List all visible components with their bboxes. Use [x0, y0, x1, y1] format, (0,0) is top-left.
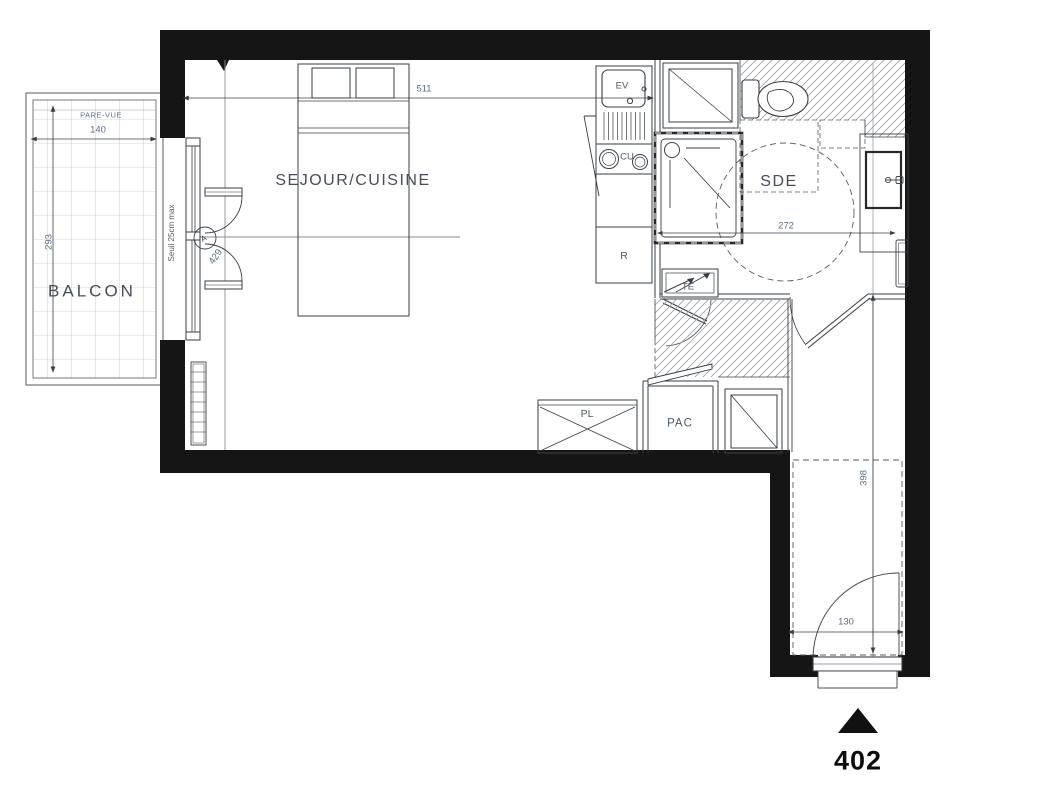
- balcony-depth-dim: 293: [44, 234, 54, 250]
- exterior-walls: [160, 30, 930, 677]
- vanity: [860, 134, 908, 252]
- heat-pump-label: PAC: [667, 418, 693, 430]
- unit-number: 402: [834, 748, 882, 775]
- sde-door: [790, 294, 870, 348]
- electrical-panel-label: TE: [682, 282, 694, 292]
- hall-dimension-lines: [793, 300, 903, 653]
- balcony-window-bay: [186, 138, 200, 340]
- pillow: [356, 68, 394, 98]
- bathroom-label: SDE: [760, 174, 797, 190]
- hall-length-dim: 398: [859, 470, 869, 486]
- balcony-screen-label: PARE-VUE: [80, 111, 122, 119]
- sink-label: EV: [616, 81, 629, 91]
- counter-callout: [584, 116, 599, 196]
- counter-unit: [596, 174, 652, 227]
- wall-tick-marker: [217, 60, 229, 71]
- radiator: [191, 362, 206, 445]
- entry-door: [813, 573, 902, 688]
- balcony-width-dim: 140: [90, 125, 106, 135]
- living-width-dim: 511: [416, 84, 431, 94]
- sink-drainer: [604, 112, 645, 140]
- pillow: [312, 68, 350, 98]
- fridge-label: R: [620, 251, 628, 262]
- toilet: [742, 80, 808, 118]
- wc-clearance-dashed: [820, 120, 865, 148]
- triangle-marker-icon: [838, 708, 878, 733]
- bathroom-width-dim: 272: [778, 221, 794, 231]
- balcony-label: BALCON: [48, 283, 136, 300]
- tall-cabinet: [663, 63, 738, 128]
- living-room-label: SEJOUR/CUISINE: [275, 173, 430, 189]
- floor-plan: PARE-VUE 140 293 BALCON Seuil 25cm max A…: [0, 0, 1039, 800]
- floor-plan-drawing: [0, 0, 1039, 800]
- hob-label: CU: [620, 152, 634, 162]
- threshold-note: Seuil 25cm max: [168, 205, 176, 262]
- kitchen-counter: [584, 66, 652, 283]
- bed: [298, 64, 409, 316]
- storage-closet-label: PL: [581, 409, 594, 420]
- entry-door-dim: 130: [838, 617, 854, 627]
- entry-closet: [725, 389, 782, 453]
- heat-pump-closet: [643, 364, 718, 453]
- shower-tray: [655, 133, 742, 243]
